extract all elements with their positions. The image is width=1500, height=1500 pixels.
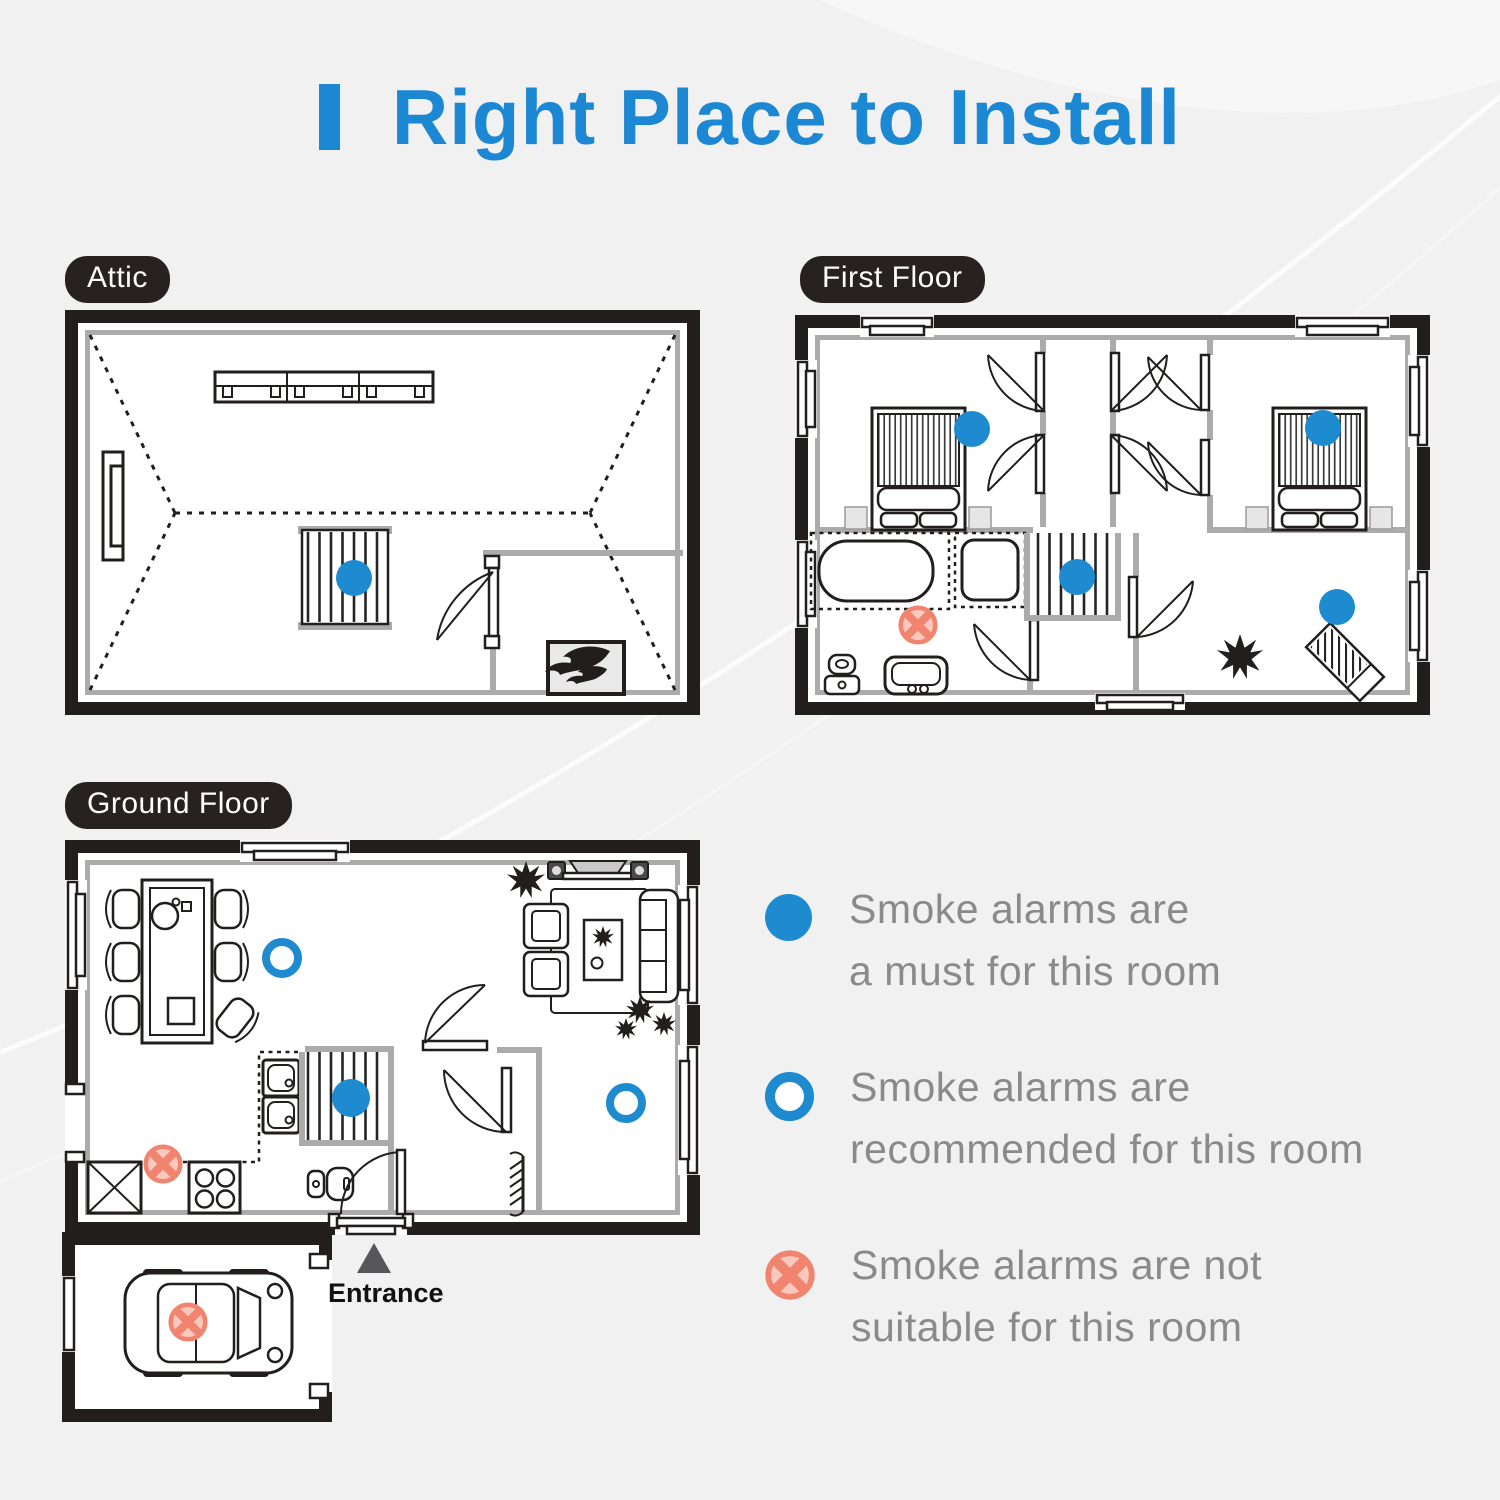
armchair [524,952,568,996]
window [62,1276,76,1352]
window [860,315,934,337]
armchair [524,904,568,948]
label-attic-text: Attic [87,261,148,295]
kitchen-counter-x [88,1162,141,1213]
page-title: Right Place to Install [0,72,1500,162]
label-ground-floor: Ground Floor [65,782,292,829]
legend-item-not-suitable-text: Smoke alarms are not suitable for this r… [851,1234,1262,1358]
marker-must-room-bottom-right [1319,589,1355,625]
ceiling-beam [215,372,433,402]
marker-must-ground-stairs [332,1079,370,1117]
ground-floor-plan [65,840,700,1235]
not-suitable-icon [765,1250,815,1305]
window [678,1045,700,1175]
attic-floor-plan [65,310,700,715]
window [678,885,700,1005]
must-circle-icon [765,894,813,941]
marker-not-garage [171,1305,206,1340]
sink-vanity [885,657,947,694]
shower [955,533,1025,607]
marker-must-first-stairs [1059,559,1095,595]
window [1408,355,1430,447]
stove [189,1162,240,1213]
first-floor-plan [795,315,1430,715]
legend-item-not-suitable: Smoke alarms are not suitable for this r… [765,1234,1364,1358]
label-first-floor: First Floor [800,256,985,303]
label-first-floor-text: First Floor [822,261,963,295]
window [1095,693,1185,710]
legend: Smoke alarms are a must for this room Sm… [765,878,1364,1412]
legend-item-recommended: Smoke alarms are recommended for this ro… [765,1056,1364,1180]
marker-not-bathroom [901,608,936,643]
poster: Right Place to Install Attic First Floor… [0,0,1500,1500]
legend-item-recommended-text: Smoke alarms are recommended for this ro… [850,1056,1364,1180]
marker-must-bedroom-left [954,411,990,447]
marker-must-attic-stairs [336,560,372,596]
window [795,360,817,438]
marker-not-kitchen [146,1147,181,1182]
sofa [640,890,678,1002]
window [1295,315,1390,337]
marker-recommended-dining [266,942,298,974]
window [65,880,87,990]
window [795,540,817,628]
label-ground-floor-text: Ground Floor [87,787,270,821]
dining-table [142,880,212,1043]
marker-recommended-hall [610,1087,642,1119]
page-title-text: Right Place to Install [392,72,1181,163]
marker-must-bedroom-right [1305,410,1341,446]
entrance-label: Entrance [328,1278,440,1309]
recommended-ring-icon [765,1072,814,1121]
legend-item-must: Smoke alarms are a must for this room [765,878,1364,1002]
furnace-icon [545,642,624,694]
speaker-icon [631,862,648,879]
car-icon [125,1269,292,1377]
window [1408,570,1430,662]
toilet [308,1168,353,1200]
entrance-arrow-icon [357,1243,391,1273]
title-bar-icon [319,84,340,150]
label-attic: Attic [65,256,170,303]
window [240,840,350,862]
window [65,1084,85,1162]
legend-item-must-text: Smoke alarms are a must for this room [849,878,1221,1002]
garage-plan [62,1232,332,1422]
attic-left-window [103,452,123,560]
coffee-table [584,920,622,980]
